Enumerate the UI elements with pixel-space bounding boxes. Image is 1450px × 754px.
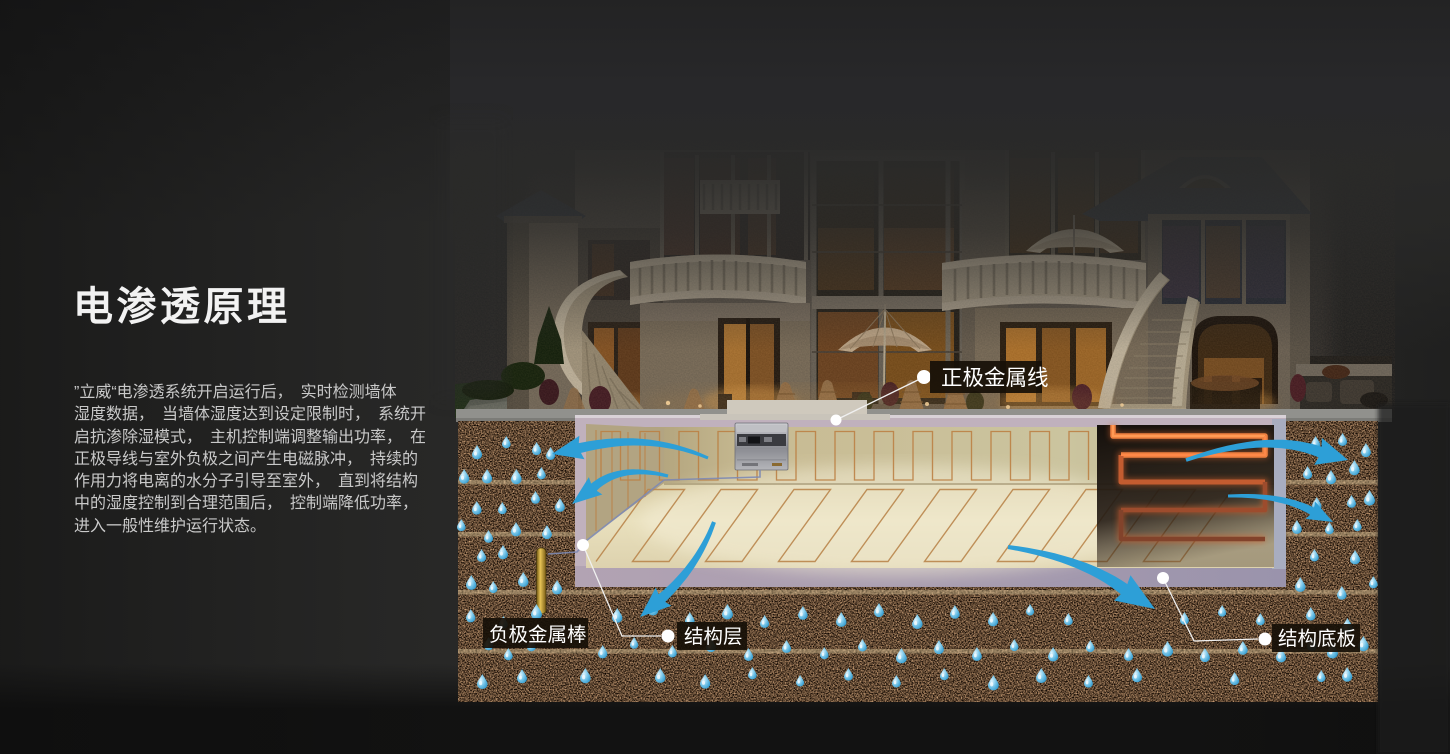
svg-text:正极金属线: 正极金属线 [941,366,1049,390]
svg-text:结构层: 结构层 [684,626,743,648]
svg-text:负极金属棒: 负极金属棒 [489,624,587,646]
svg-text:结构底板: 结构底板 [1278,628,1356,650]
